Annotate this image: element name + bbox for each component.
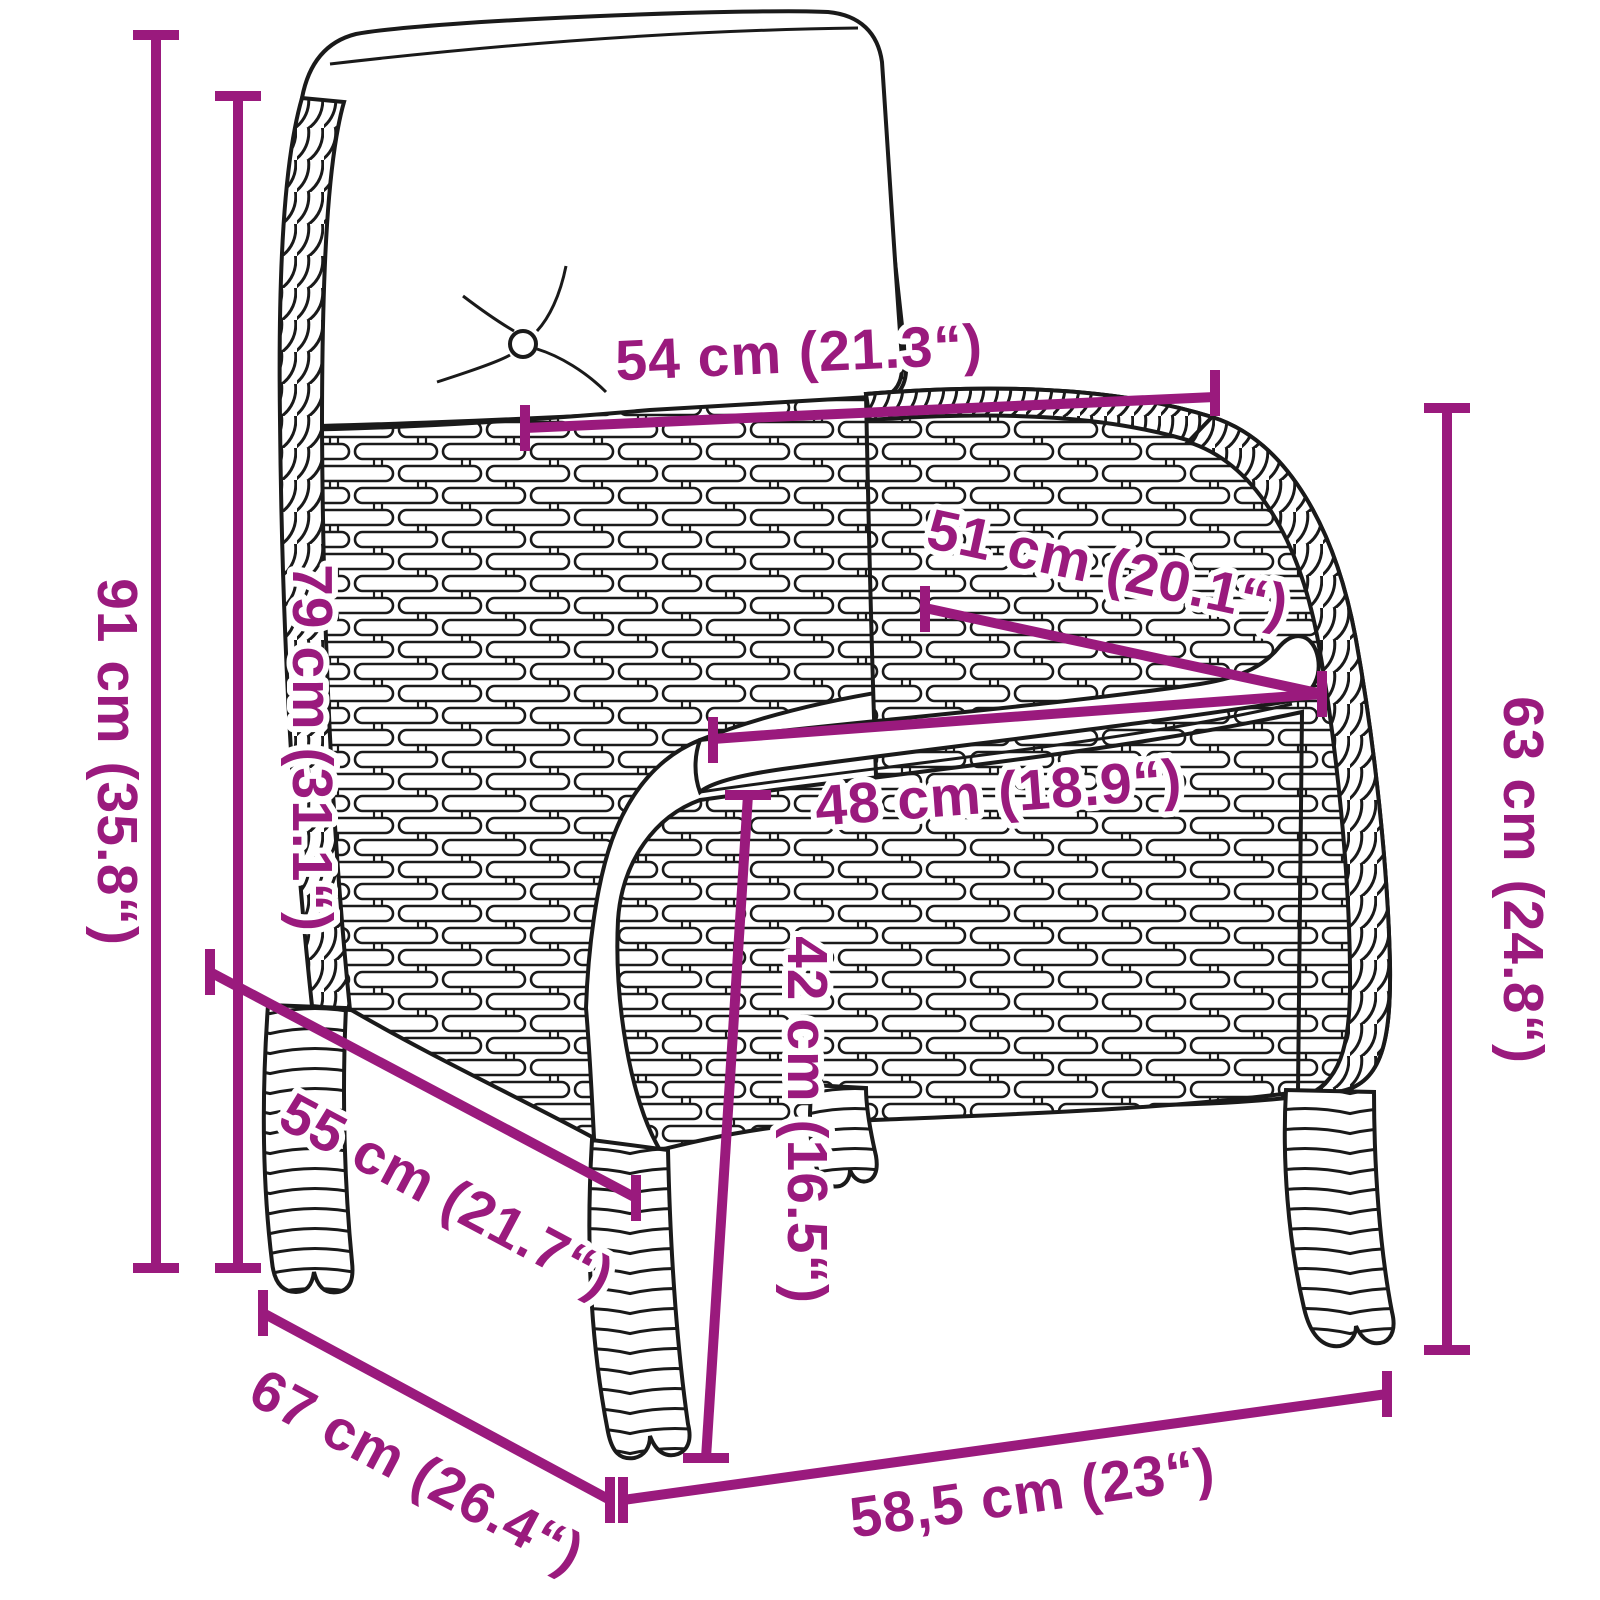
chair-dimension-diagram: 91 cm (35.8“) 79 cm (31.1“) 54 cm (21.3“…	[0, 0, 1600, 1600]
dimension-total-height: 91 cm (35.8“)	[85, 35, 179, 1268]
dimension-armrest-height: 63 cm (24.8“)	[1424, 408, 1555, 1350]
dimension-front-width: 58,5 cm (23“)	[623, 1371, 1387, 1550]
dimension-total-depth: 67 cm (26.4“)	[239, 1290, 610, 1586]
dimension-label-armrest-height: 63 cm (24.8“)	[1491, 696, 1555, 1064]
dimension-label-front-width: 58,5 cm (23“)	[846, 1436, 1219, 1551]
cushion-button	[510, 331, 536, 357]
dimension-label-backrest-height: 79 cm (31.1“)	[280, 564, 344, 932]
front-right-leg	[1285, 1090, 1394, 1346]
dimension-label-seat-height: 42 cm (16.5“)	[775, 936, 839, 1304]
diagram-page: 91 cm (35.8“) 79 cm (31.1“) 54 cm (21.3“…	[0, 0, 1600, 1600]
dimension-label-total-height: 91 cm (35.8“)	[85, 578, 149, 946]
